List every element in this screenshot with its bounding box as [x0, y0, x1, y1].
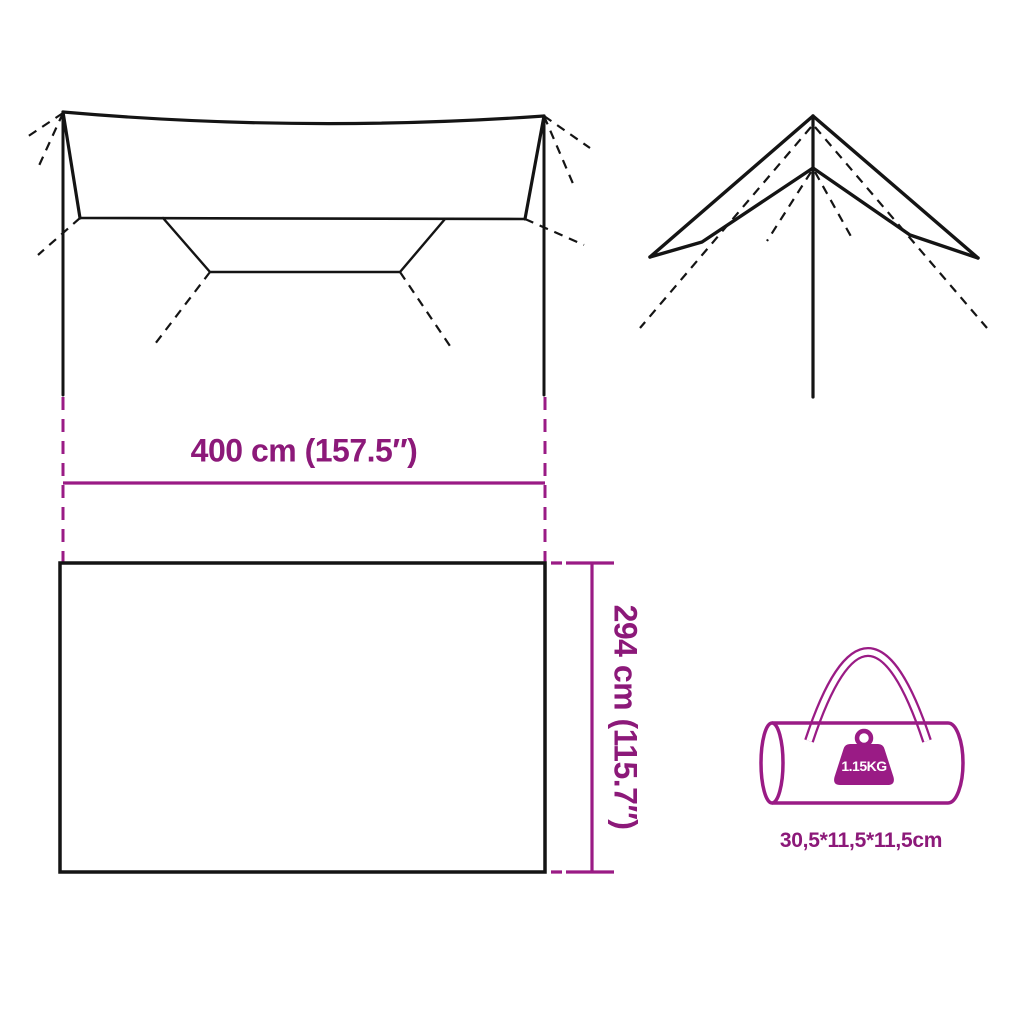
- height-dimension: [551, 563, 614, 872]
- flat-tarp-rectangle: [60, 563, 545, 872]
- diagram-line-art: [0, 0, 1024, 1024]
- weight-value-label: 1.15KG: [841, 758, 886, 774]
- carry-bag-icon: [761, 652, 963, 803]
- tarp-side-view-icon: [640, 116, 987, 397]
- product-dimension-diagram: 400 cm (157.5″) 294 cm (115.7″) 1.15KG 3…: [0, 0, 1024, 1024]
- width-dimension: [63, 397, 545, 563]
- tarp-height-label: 294 cm (115.7″): [607, 605, 644, 830]
- tarp-top-view-icon: [27, 112, 590, 395]
- packed-size-label: 30,5*11,5*11,5cm: [780, 829, 942, 853]
- tarp-width-label: 400 cm (157.5″): [191, 433, 418, 470]
